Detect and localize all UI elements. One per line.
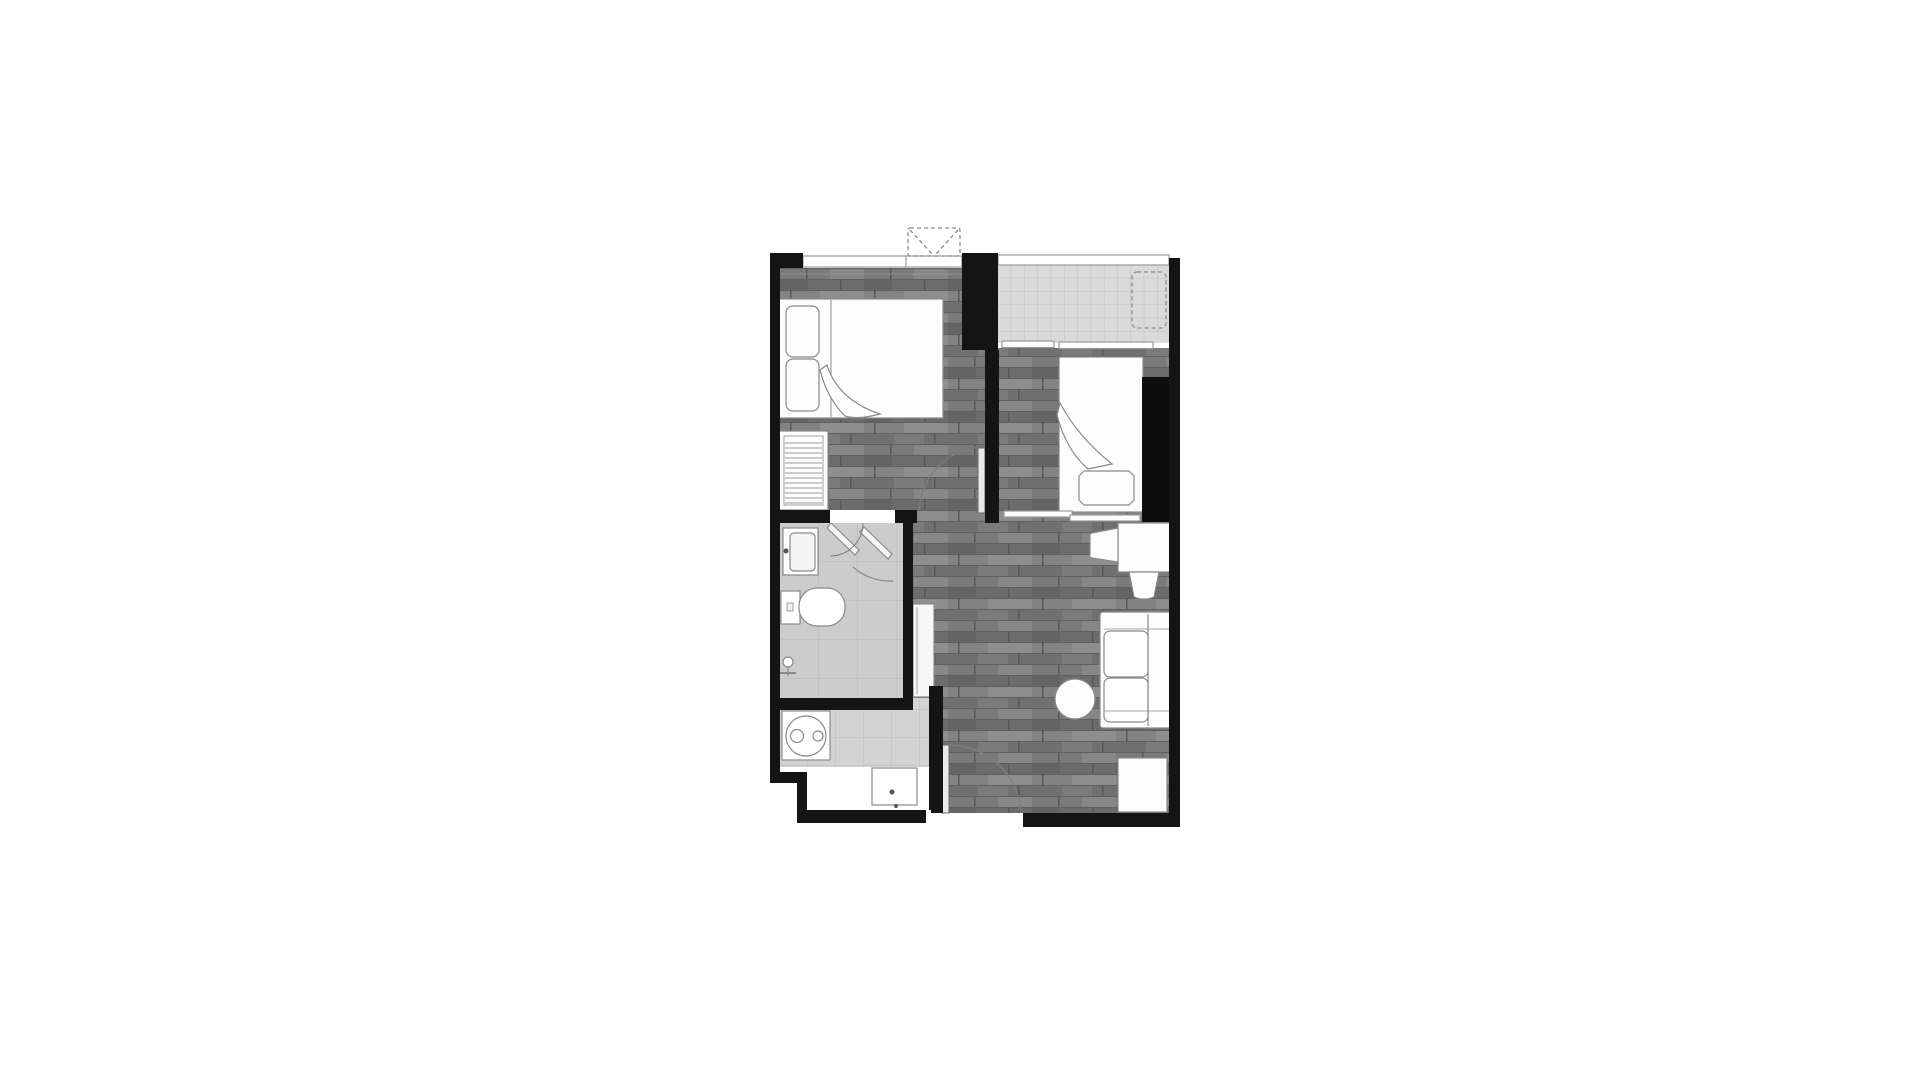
wall-bathroom-east <box>903 523 913 710</box>
wall-bedroom1-south-b <box>895 510 917 523</box>
balcony-sliding-panel <box>1002 341 1054 348</box>
wall-bottom-right <box>1023 813 1180 827</box>
bedroom-2 <box>1057 357 1143 512</box>
wall-column-top <box>962 253 998 350</box>
bedroom-1-window <box>803 256 962 267</box>
entrance-door-leaf <box>942 745 949 813</box>
balcony-sliding-panel <box>1059 342 1153 349</box>
wall-notch-horizontal <box>770 772 807 783</box>
sink-faucet-dot <box>894 804 898 808</box>
wall-bedroom1-east <box>985 350 999 523</box>
wall-kitchen-east <box>929 686 943 813</box>
entry-frame-gap <box>926 810 931 823</box>
sofa-icon <box>1100 612 1173 728</box>
balcony-railing <box>998 255 1169 265</box>
wall-bedroom1-south-a <box>770 510 830 523</box>
pillow-icon <box>786 359 819 411</box>
desk-icon <box>1118 523 1171 572</box>
washing-machine-door <box>791 730 804 743</box>
ac-fan-dashed <box>910 230 932 254</box>
ac-condenser-dashed-top <box>908 228 960 256</box>
toilet-bowl <box>799 588 845 626</box>
balcony-floor <box>998 265 1169 343</box>
bedroom-2-sliding-panel <box>1070 515 1140 521</box>
basin-faucet-dot <box>784 549 789 554</box>
wall-bathroom-south <box>770 698 913 710</box>
floor-plan <box>0 0 1920 1080</box>
sink-counter <box>872 768 917 805</box>
washing-machine-knob <box>813 731 823 741</box>
ac-fan-dashed <box>936 230 958 254</box>
wall-bottom-left <box>797 810 929 823</box>
sink-drain-dot <box>890 790 895 795</box>
wall-right <box>1169 258 1180 827</box>
bedroom-2-sliding-panel <box>1004 511 1072 517</box>
toilet-tank-button <box>787 603 793 611</box>
bedroom-1-door-leaf <box>978 448 985 513</box>
wall-top-left <box>770 253 803 268</box>
round-side-table-icon <box>1055 679 1095 719</box>
chair-icon <box>1090 528 1118 562</box>
stool-icon <box>1129 572 1159 599</box>
page-canvas <box>0 0 1920 1080</box>
pocket-door-panel <box>913 604 934 697</box>
pillow-icon <box>786 306 819 357</box>
foot-cushion-icon <box>1079 471 1134 505</box>
built-in-closet-block <box>1142 377 1169 522</box>
shoe-cabinet-icon <box>1118 758 1167 812</box>
wash-basin-bowl <box>790 533 815 571</box>
